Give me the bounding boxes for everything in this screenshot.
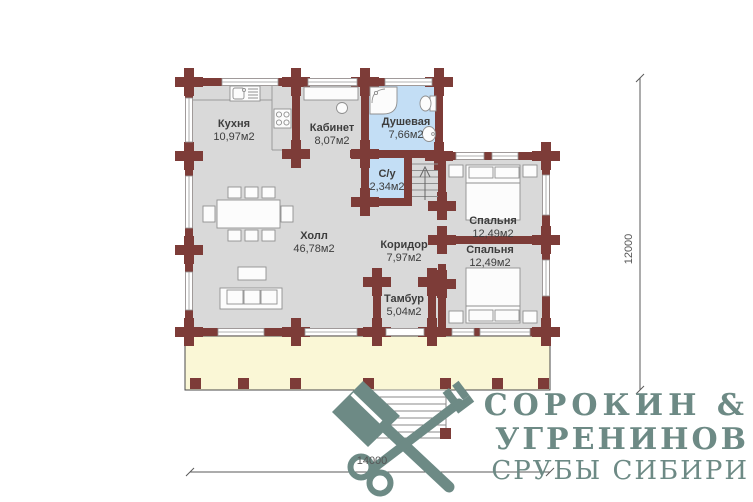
room-label-shower: Душевая 7,66м2: [382, 116, 431, 142]
room-area: 12,49м2: [466, 257, 514, 270]
kitchen-sink: [230, 86, 260, 101]
coffee-table: [238, 267, 266, 280]
room-label-wc: С/у 2,34м2: [369, 168, 404, 194]
room-area: 5,04м2: [384, 306, 424, 319]
nightstand: [449, 311, 463, 323]
nightstand: [523, 165, 537, 177]
room-label-bedroom-2: Спальня 12,49м2: [466, 244, 514, 270]
room-name: Душевая: [382, 116, 431, 129]
room-name: Кабинет: [310, 122, 355, 135]
sofa: [220, 288, 282, 309]
room-area: 7,66м2: [382, 129, 431, 142]
room-area: 12,49м2: [469, 228, 517, 241]
terrace: [185, 336, 550, 390]
room-name: Спальня: [469, 215, 517, 228]
dimension-width-label: 14000: [347, 455, 397, 467]
dimension-height-label: 12000: [623, 224, 635, 274]
stove: [274, 109, 291, 128]
nightstand: [523, 311, 537, 323]
logo-line-1: СОРОКИН &: [484, 389, 749, 423]
nightstand: [449, 165, 463, 177]
logo-line-3: СРУБЫ СИБИРИ: [484, 456, 749, 487]
room-area: 8,07м2: [310, 135, 355, 148]
room-name: Холл: [293, 230, 334, 243]
room-name: Кухня: [213, 118, 254, 131]
company-logo: СОРОКИН & УГРЕНИНОВ СРУБЫ СИБИРИ: [484, 389, 749, 487]
entrance-door: [386, 329, 424, 336]
room-area: 10,97м2: [213, 131, 254, 144]
room-label-vestibule: Тамбур 5,04м2: [384, 293, 424, 319]
room-area: 46,78м2: [293, 243, 334, 256]
logo-line-2: УГРЕНИНОВ: [484, 423, 749, 456]
room-label-bedroom-1: Спальня 12,49м2: [469, 215, 517, 241]
room-area: 7,97м2: [380, 252, 427, 265]
toilet: [420, 96, 436, 111]
floor-plan-page: Кухня 10,97м2 Кабинет 8,07м2 Душевая 7,6…: [0, 0, 753, 502]
room-name: Коридор: [380, 239, 427, 252]
room-label-corridor: Коридор 7,97м2: [380, 239, 427, 265]
room-name: Спальня: [466, 244, 514, 257]
shower-cabin: [370, 87, 397, 114]
room-label-hall: Холл 46,78м2: [293, 230, 334, 256]
room-name: С/у: [369, 168, 404, 181]
room-area: 2,34м2: [369, 181, 404, 194]
room-label-kitchen: Кухня 10,97м2: [213, 118, 254, 144]
room-label-office: Кабинет 8,07м2: [310, 122, 355, 148]
room-name: Тамбур: [384, 293, 424, 306]
